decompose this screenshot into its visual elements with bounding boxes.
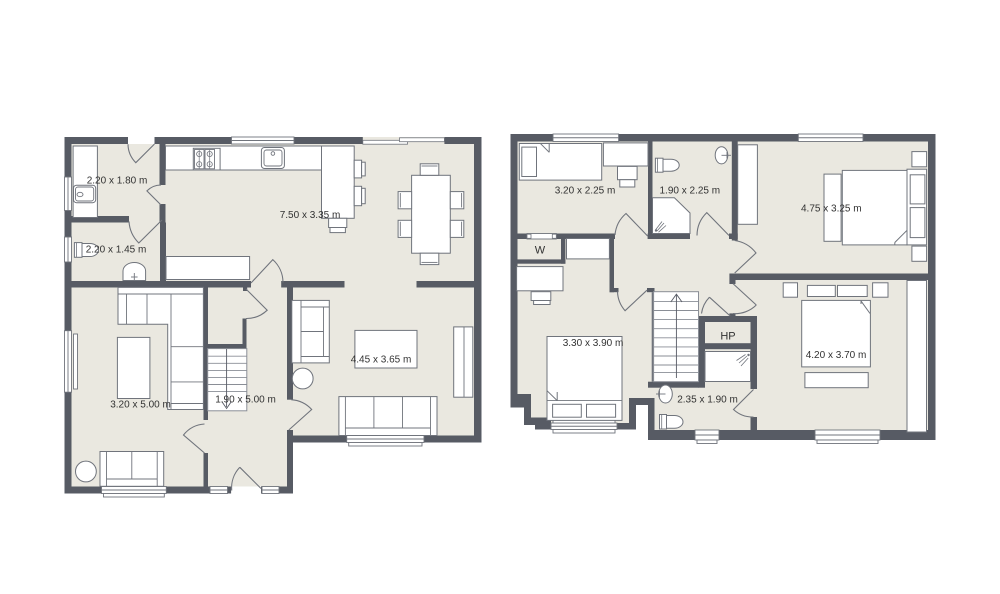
svg-text:W: W xyxy=(535,245,546,257)
svg-text:2.20 x 1.80 m: 2.20 x 1.80 m xyxy=(87,176,148,187)
svg-text:2.20 x 1.45 m: 2.20 x 1.45 m xyxy=(86,245,147,256)
svg-text:3.20 x 2.25 m: 3.20 x 2.25 m xyxy=(555,186,616,197)
svg-text:4.45 x 3.65 m: 4.45 x 3.65 m xyxy=(351,355,412,366)
svg-text:7.50 x 3.35 m: 7.50 x 3.35 m xyxy=(280,210,341,221)
svg-text:HP: HP xyxy=(720,331,735,343)
svg-text:1.90 x 2.25 m: 1.90 x 2.25 m xyxy=(660,186,721,197)
svg-text:3.20 x 5.00 m: 3.20 x 5.00 m xyxy=(110,400,171,411)
svg-text:3.30 x 3.90 m: 3.30 x 3.90 m xyxy=(563,338,624,349)
svg-text:4.75 x 3.25 m: 4.75 x 3.25 m xyxy=(801,204,862,215)
svg-text:4.20 x 3.70 m: 4.20 x 3.70 m xyxy=(806,350,867,361)
svg-text:2.35 x 1.90 m: 2.35 x 1.90 m xyxy=(677,395,738,406)
svg-text:1.90 x 5.00 m: 1.90 x 5.00 m xyxy=(215,395,276,406)
